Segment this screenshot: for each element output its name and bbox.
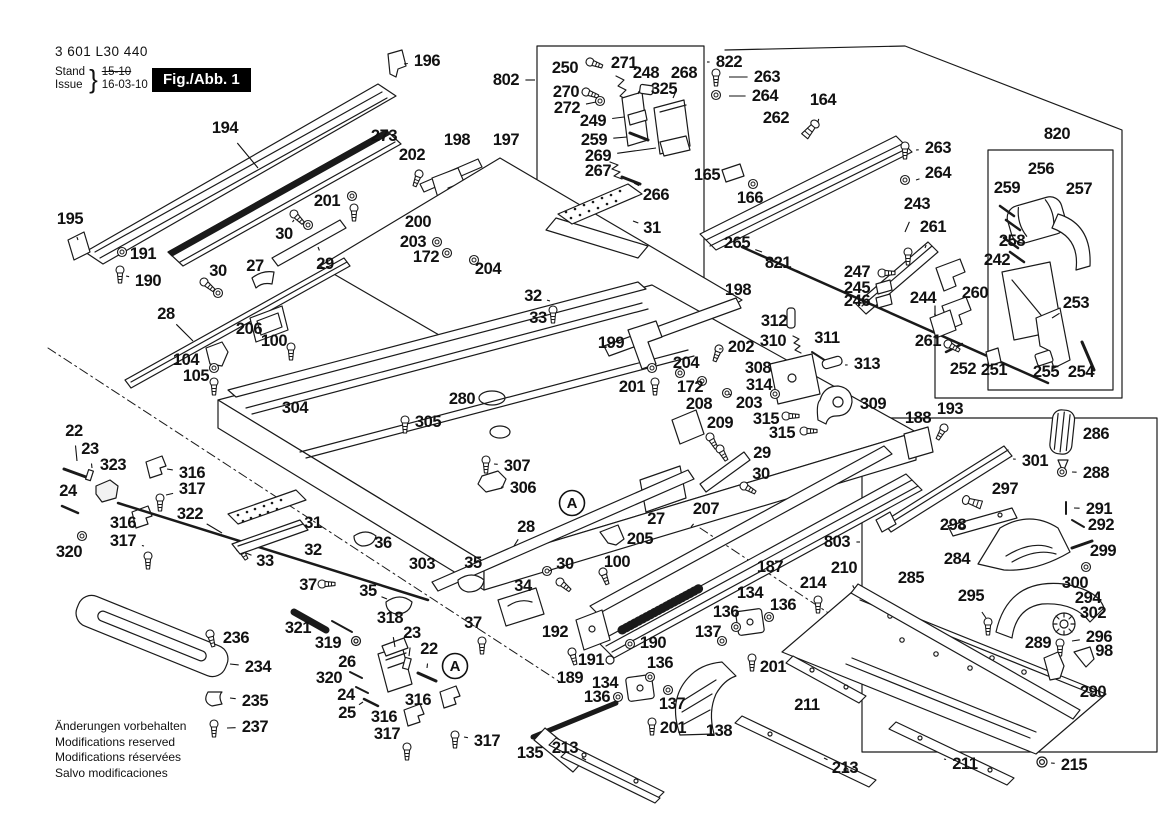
part-callout-22: 22 <box>65 422 83 440</box>
part-callout-190: 190 <box>135 272 162 290</box>
leader-line <box>166 493 173 495</box>
part-callout-205: 205 <box>627 530 654 548</box>
part-callout-32: 32 <box>304 541 322 559</box>
part-callout-137: 137 <box>659 695 686 713</box>
part-callout-264: 264 <box>925 164 953 182</box>
part-callout-235: 235 <box>242 692 269 710</box>
leader-line <box>359 702 363 705</box>
washer-264a <box>712 91 721 100</box>
part-callout-319: 319 <box>315 634 342 652</box>
part-callout-210: 210 <box>831 559 858 577</box>
part-callout-211: 211 <box>794 696 820 714</box>
part-callout-290: 290 <box>1080 683 1107 701</box>
part-callout-289: 289 <box>1025 634 1052 652</box>
part-callout-189: 189 <box>557 669 584 687</box>
part-callout-325: 325 <box>651 80 678 98</box>
part-callout-33: 33 <box>256 552 274 570</box>
washer-264b <box>901 176 910 185</box>
part-callout-200: 200 <box>405 213 432 231</box>
leader-line <box>92 464 93 469</box>
part-callout-201: 201 <box>619 378 646 396</box>
part-callout-211: 211 <box>952 755 978 773</box>
part-callout-305: 305 <box>415 413 442 431</box>
part-callout-191: 191 <box>578 651 605 669</box>
washer-288 <box>1058 468 1067 477</box>
part-callout-202: 202 <box>399 146 426 164</box>
part-callout-105: 105 <box>183 367 210 385</box>
part-callout-190: 190 <box>640 634 667 652</box>
leader-line <box>318 247 319 251</box>
part-callout-286: 286 <box>1083 425 1110 443</box>
leader-line <box>404 64 408 65</box>
part-callout-191: 191 <box>130 245 157 263</box>
leader-line <box>617 148 656 153</box>
part-endcap-195 <box>68 232 90 260</box>
leader-line <box>142 546 144 547</box>
part-housing-284 <box>978 519 1070 570</box>
part-callout-30: 30 <box>556 555 574 573</box>
part-callout-215: 215 <box>1061 756 1088 774</box>
part-callout-308: 308 <box>745 359 772 377</box>
part-callout-28: 28 <box>517 518 535 536</box>
part-callout-244: 244 <box>910 289 938 307</box>
part-callout-172: 172 <box>677 378 704 396</box>
part-callout-321: 321 <box>285 619 312 637</box>
part-callout-24: 24 <box>337 686 356 704</box>
leader-line <box>230 698 236 699</box>
leader-line <box>464 737 468 738</box>
part-callout-320: 320 <box>316 669 343 687</box>
part-callout-35: 35 <box>464 554 482 572</box>
leader-line <box>612 117 624 119</box>
leader-line <box>916 179 920 180</box>
part-callout-309: 309 <box>860 395 887 413</box>
part-callout-24: 24 <box>59 482 78 500</box>
leader-line <box>126 276 129 277</box>
part-nut-215 <box>1037 757 1047 767</box>
part-callout-237: 237 <box>242 718 269 736</box>
part-callout-246: 246 <box>844 292 871 310</box>
part-callout-37: 37 <box>464 614 482 632</box>
part-callout-267: 267 <box>585 162 612 180</box>
part-callout-199: 199 <box>598 334 625 352</box>
part-callout-236: 236 <box>223 629 250 647</box>
part-callout-100: 100 <box>604 553 631 571</box>
part-callout-198: 198 <box>725 281 752 299</box>
part-callout-273: 273 <box>371 127 398 145</box>
part-fence-262 <box>700 136 912 250</box>
part-callout-313: 313 <box>854 355 881 373</box>
bolt-297 <box>961 495 982 510</box>
part-callout-314: 314 <box>746 376 774 394</box>
part-callout-255: 255 <box>1033 363 1060 381</box>
part-callout-28: 28 <box>157 305 175 323</box>
part-callout-259: 259 <box>994 179 1021 197</box>
part-callout-166: 166 <box>737 189 764 207</box>
part-callout-36: 36 <box>374 534 392 552</box>
part-clip-196 <box>388 50 406 77</box>
part-callout-299: 299 <box>1090 542 1117 560</box>
part-callout-316: 316 <box>371 708 398 726</box>
part-callout-136: 136 <box>584 688 611 706</box>
part-callout-204: 204 <box>475 260 503 278</box>
leader-line <box>293 220 295 222</box>
part-callout-323: 323 <box>100 456 127 474</box>
part-callout-197: 197 <box>493 131 520 149</box>
part-callout-35: 35 <box>359 582 377 600</box>
part-callout-258: 258 <box>999 232 1026 250</box>
leader-line <box>755 250 762 252</box>
part-callout-320: 320 <box>56 543 83 561</box>
exploded-view-drawing: 1961942732021981978022502712482683252702… <box>0 0 1166 824</box>
part-callout-315: 315 <box>769 424 796 442</box>
part-callout-165: 165 <box>694 166 721 184</box>
part-callout-32: 32 <box>524 287 542 305</box>
part-callout-34: 34 <box>514 577 533 595</box>
leader-line <box>382 597 388 599</box>
part-callout-98: 98 <box>1095 642 1113 660</box>
part-callout-303: 303 <box>409 555 436 573</box>
screw-263a <box>712 69 720 86</box>
part-callout-316: 316 <box>110 514 137 532</box>
part-callout-310: 310 <box>760 332 787 350</box>
part-callout-263: 263 <box>925 139 952 157</box>
part-callout-27: 27 <box>647 510 665 528</box>
leader-line <box>586 102 596 104</box>
part-miter-plate-234 <box>72 591 232 737</box>
part-callout-209: 209 <box>707 414 734 432</box>
part-callout-193: 193 <box>937 400 964 418</box>
part-callout-317: 317 <box>179 480 206 498</box>
part-callout-302: 302 <box>1080 604 1107 622</box>
leader-line <box>613 137 627 138</box>
part-callout-172: 172 <box>413 248 440 266</box>
part-callout-134: 134 <box>737 584 765 602</box>
part-callout-260: 260 <box>962 284 989 302</box>
part-callout-188: 188 <box>905 409 932 427</box>
part-callout-256: 256 <box>1028 160 1055 178</box>
part-callout-30: 30 <box>275 225 293 243</box>
part-callout-254: 254 <box>1068 363 1096 381</box>
part-callout-272: 272 <box>554 99 581 117</box>
part-callout-234: 234 <box>245 658 273 676</box>
part-callout-201: 201 <box>760 658 787 676</box>
part-callout-135: 135 <box>517 744 544 762</box>
part-callout-284: 284 <box>944 550 972 568</box>
part-callout-249: 249 <box>580 112 607 130</box>
part-callout-30: 30 <box>752 465 770 483</box>
part-callout-208: 208 <box>686 395 713 413</box>
part-hook-35a <box>458 575 484 592</box>
part-callout-27: 27 <box>246 257 264 275</box>
part-callout-136: 136 <box>770 596 797 614</box>
part-callout-23: 23 <box>81 440 99 458</box>
part-callout-821: 821 <box>765 254 792 272</box>
part-callout-31: 31 <box>304 514 322 532</box>
part-callout-252: 252 <box>950 360 977 378</box>
part-callout-262: 262 <box>763 109 790 127</box>
part-callout-802: 802 <box>493 71 520 89</box>
part-callout-316: 316 <box>405 691 432 709</box>
part-callout-317: 317 <box>374 725 401 743</box>
part-callout-318: 318 <box>377 609 404 627</box>
part-callout-243: 243 <box>904 195 931 213</box>
part-callout-164: 164 <box>810 91 838 109</box>
part-callout-30: 30 <box>209 262 227 280</box>
part-callout-266: 266 <box>643 186 670 204</box>
part-callout-803: 803 <box>824 533 851 551</box>
part-callout-261: 261 <box>915 332 942 350</box>
part-callout-136: 136 <box>713 603 740 621</box>
part-callout-301: 301 <box>1022 452 1049 470</box>
part-callout-213: 213 <box>552 739 579 757</box>
leader-line <box>176 324 193 341</box>
part-callout-295: 295 <box>958 587 985 605</box>
part-callout-242: 242 <box>984 251 1011 269</box>
part-callout-201: 201 <box>314 192 341 210</box>
leader-line <box>427 664 428 669</box>
leader-line <box>409 648 410 657</box>
part-callout-263: 263 <box>754 68 781 86</box>
leader-line <box>1072 640 1080 641</box>
part-callout-207: 207 <box>693 500 720 518</box>
assembly-marker-label: A <box>567 495 578 512</box>
part-rail-194 <box>85 84 396 264</box>
part-callout-23: 23 <box>403 624 421 642</box>
part-callout-204: 204 <box>673 354 701 372</box>
leader-line <box>230 664 239 665</box>
leader-line <box>853 585 854 588</box>
part-callout-312: 312 <box>761 312 788 330</box>
part-callout-213: 213 <box>832 759 859 777</box>
part-callout-100: 100 <box>261 332 288 350</box>
part-callout-257: 257 <box>1066 180 1093 198</box>
part-callout-304: 304 <box>282 399 310 417</box>
part-clip-165 <box>722 164 744 182</box>
part-callout-265: 265 <box>724 234 751 252</box>
part-callout-136: 136 <box>647 654 674 672</box>
part-callout-202: 202 <box>728 338 755 356</box>
leader-line <box>818 119 819 122</box>
part-callout-253: 253 <box>1063 294 1090 312</box>
part-callout-22: 22 <box>420 640 438 658</box>
part-callout-33: 33 <box>529 309 547 327</box>
part-callout-251: 251 <box>981 361 1008 379</box>
part-callout-194: 194 <box>212 119 240 137</box>
part-hook-36 <box>354 532 376 546</box>
part-callout-187: 187 <box>757 558 784 576</box>
part-callout-261: 261 <box>920 218 947 236</box>
part-callout-280: 280 <box>449 390 476 408</box>
leader-line <box>633 221 638 223</box>
part-callout-201: 201 <box>660 719 687 737</box>
part-callout-306: 306 <box>510 479 537 497</box>
part-callout-822: 822 <box>716 53 743 71</box>
part-callout-137: 137 <box>695 623 722 641</box>
part-callout-264: 264 <box>752 87 780 105</box>
part-callout-195: 195 <box>57 210 84 228</box>
part-callout-25: 25 <box>338 704 356 722</box>
part-callout-206: 206 <box>236 320 263 338</box>
part-callout-198: 198 <box>444 131 471 149</box>
leader-line <box>905 222 909 232</box>
leader-line <box>76 446 78 462</box>
assembly-marker-label: A <box>450 658 461 675</box>
part-knob-286 <box>1049 409 1075 472</box>
part-callout-138: 138 <box>706 722 733 740</box>
washer-166 <box>749 180 758 189</box>
part-callout-285: 285 <box>898 569 925 587</box>
part-callout-29: 29 <box>753 444 771 462</box>
part-insert-32b <box>232 520 308 554</box>
leader-line <box>167 469 173 470</box>
part-insert-31b <box>228 490 306 524</box>
parts-diagram-page: 3 601 L30 440 Stand Issue } 15-10 16-03-… <box>0 0 1166 824</box>
part-callout-214: 214 <box>800 574 828 592</box>
part-callout-311: 311 <box>814 329 840 347</box>
leader-line <box>944 759 946 760</box>
part-callout-29: 29 <box>316 255 334 273</box>
part-callout-307: 307 <box>504 457 531 475</box>
part-callout-322: 322 <box>177 505 204 523</box>
part-callout-288: 288 <box>1083 464 1110 482</box>
part-callout-820: 820 <box>1044 125 1071 143</box>
part-callout-250: 250 <box>552 59 579 77</box>
part-knob-302 <box>1053 613 1075 635</box>
leader-line <box>982 612 986 618</box>
part-callout-31: 31 <box>643 219 661 237</box>
part-callout-317: 317 <box>110 532 137 550</box>
part-callout-317: 317 <box>474 732 501 750</box>
part-callout-37: 37 <box>299 576 317 594</box>
part-callout-298: 298 <box>940 516 967 534</box>
part-callout-297: 297 <box>992 480 1019 498</box>
part-callout-192: 192 <box>542 623 569 641</box>
part-callout-196: 196 <box>414 52 441 70</box>
part-callout-292: 292 <box>1088 516 1115 534</box>
